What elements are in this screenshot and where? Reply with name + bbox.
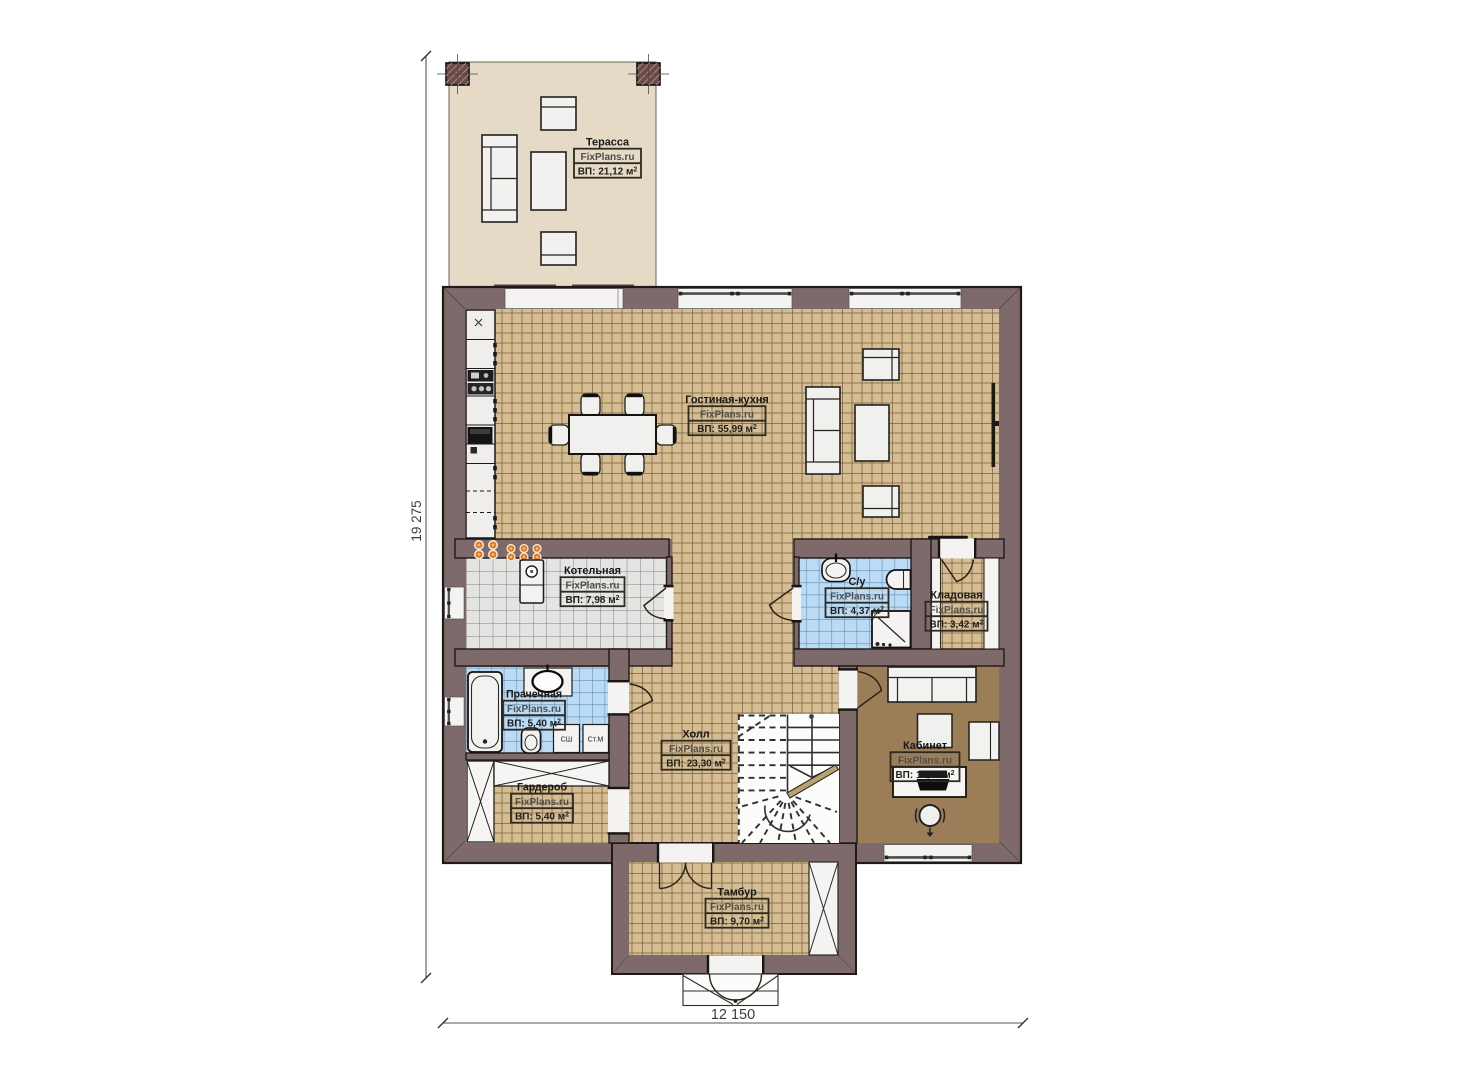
svg-text:Гостиная-кухня: Гостиная-кухня (685, 394, 768, 406)
svg-text:FixPlans.ru: FixPlans.ru (507, 704, 561, 715)
svg-text:С/у: С/у (849, 576, 866, 588)
svg-text:ВП: 7,98 м2: ВП: 7,98 м2 (565, 595, 619, 606)
svg-text:ВП: 5,40 м2: ВП: 5,40 м2 (515, 811, 569, 822)
svg-text:ВП: 55,99 м2: ВП: 55,99 м2 (697, 424, 757, 435)
svg-text:Ст.М: Ст.М (588, 735, 604, 744)
svg-text:ВП: 9,70 м2: ВП: 9,70 м2 (710, 916, 764, 927)
svg-text:FixPlans.ru: FixPlans.ru (930, 605, 984, 616)
svg-text:Гардероб: Гардероб (517, 782, 568, 794)
svg-text:ВП: 3,42 м2: ВП: 3,42 м2 (929, 619, 983, 630)
svg-text:FixPlans.ru: FixPlans.ru (515, 797, 569, 808)
svg-text:FixPlans.ru: FixPlans.ru (710, 902, 764, 913)
svg-text:FixPlans.ru: FixPlans.ru (898, 756, 952, 767)
svg-text:FixPlans.ru: FixPlans.ru (830, 592, 884, 603)
svg-text:Кабинет: Кабинет (903, 740, 948, 752)
svg-text:FixPlans.ru: FixPlans.ru (700, 410, 754, 421)
svg-text:19 275: 19 275 (409, 500, 424, 541)
svg-text:Холл: Холл (682, 729, 709, 741)
svg-text:Кладовая: Кладовая (930, 590, 982, 602)
svg-text:FixPlans.ru: FixPlans.ru (669, 744, 723, 755)
svg-text:ВП: 23,30 м2: ВП: 23,30 м2 (666, 758, 726, 769)
svg-text:Тамбур: Тамбур (717, 887, 757, 899)
svg-text:Терасса: Терасса (586, 137, 630, 149)
svg-text:Котельная: Котельная (564, 565, 621, 577)
svg-text:12 150: 12 150 (711, 1007, 755, 1023)
svg-text:ВП: 5,40 м2: ВП: 5,40 м2 (507, 718, 561, 729)
svg-text:FixPlans.ru: FixPlans.ru (566, 581, 620, 592)
svg-text:Прачечная: Прачечная (506, 689, 562, 701)
svg-text:СШ: СШ (561, 735, 573, 744)
svg-text:FixPlans.ru: FixPlans.ru (581, 152, 635, 163)
svg-text:ВП: 4,37 м2: ВП: 4,37 м2 (830, 606, 884, 617)
svg-text:ВП: 11,16 м2: ВП: 11,16 м2 (895, 770, 954, 781)
svg-text:ВП: 21,12 м2: ВП: 21,12 м2 (578, 166, 638, 177)
